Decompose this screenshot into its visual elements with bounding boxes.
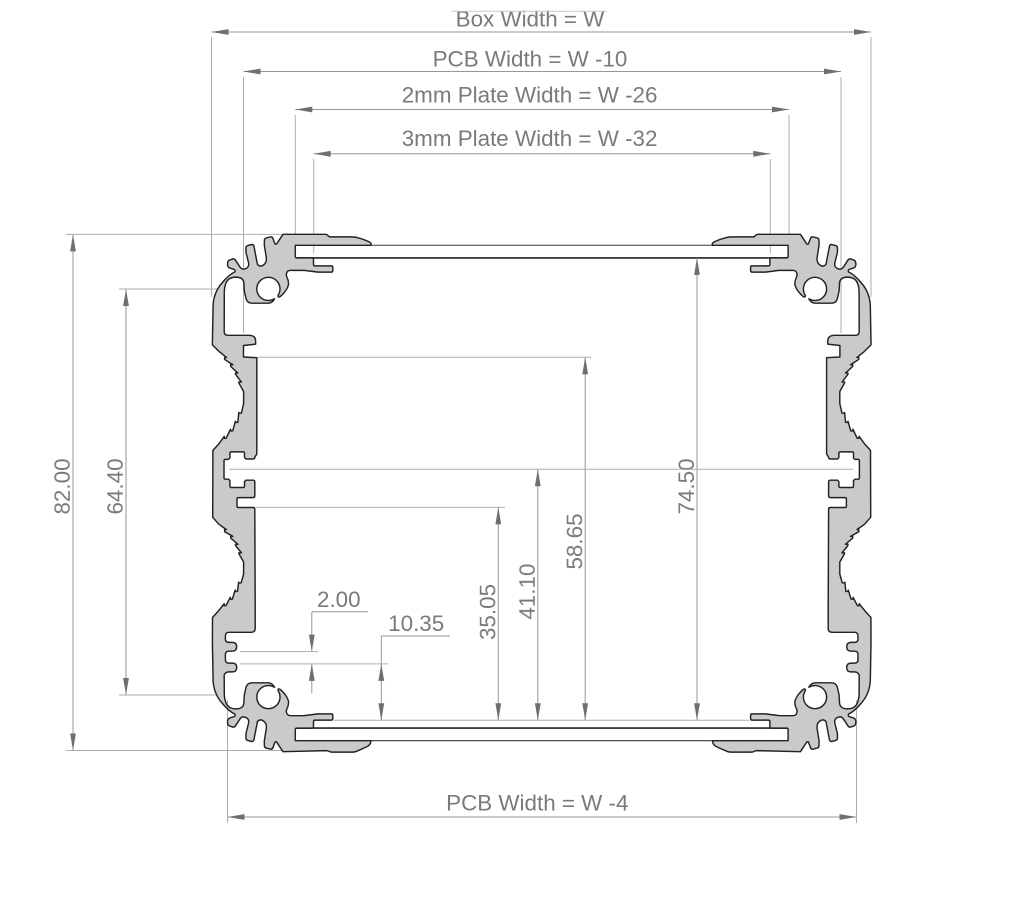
svg-text:10.35: 10.35: [388, 611, 444, 636]
svg-text:82.00: 82.00: [50, 458, 75, 514]
svg-text:2.00: 2.00: [317, 587, 361, 612]
svg-text:PCB Width = W -10: PCB Width = W -10: [433, 46, 628, 71]
svg-text:64.40: 64.40: [103, 458, 128, 514]
svg-text:PCB Width = W -4: PCB Width = W -4: [446, 791, 628, 816]
svg-text:35.05: 35.05: [475, 584, 500, 640]
svg-text:41.10: 41.10: [515, 564, 540, 620]
svg-text:74.50: 74.50: [674, 458, 699, 514]
svg-text:58.65: 58.65: [562, 513, 587, 569]
svg-text:3mm Plate Width = W -32: 3mm Plate Width = W -32: [402, 126, 658, 151]
svg-text:Box Width = W: Box Width = W: [456, 6, 606, 31]
svg-text:2mm Plate Width = W -26: 2mm Plate Width = W -26: [402, 82, 658, 107]
